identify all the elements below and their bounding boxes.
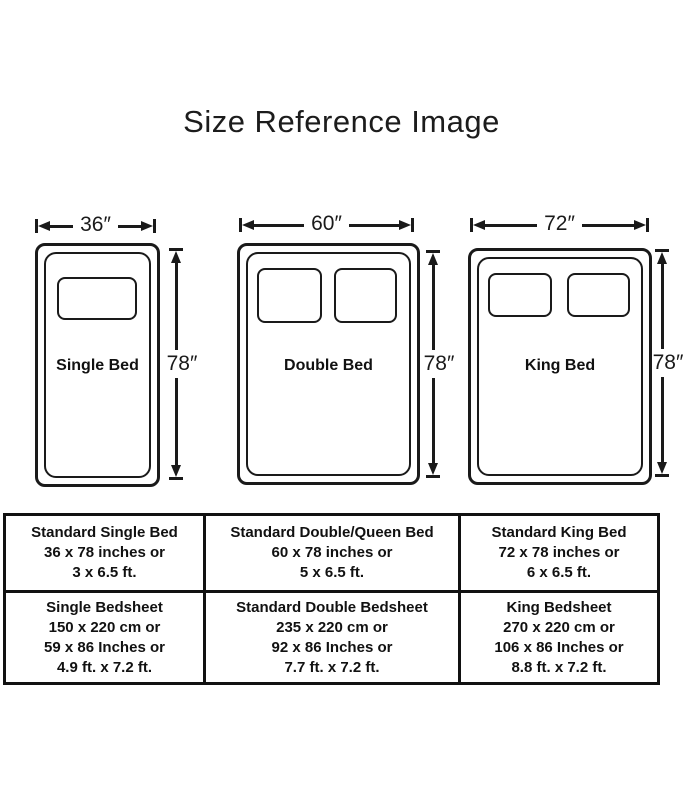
- arrow-line: [432, 378, 435, 463]
- arrow-line: [432, 265, 435, 350]
- size-reference-table: Standard Single Bed 36 x 78 inches or 3 …: [3, 513, 660, 685]
- table-line: 270 x 220 cm or: [503, 618, 615, 638]
- table-line: 106 x 86 Inches or: [494, 638, 623, 658]
- arrowhead-up-icon: [657, 252, 667, 264]
- single-bed-width-arrow: 36″: [35, 216, 156, 236]
- height-dimension-label: 78″: [424, 350, 455, 378]
- table-cell-standard-double-queen-bed: Standard Double/Queen Bed 60 x 78 inches…: [206, 516, 461, 593]
- arrow-line: [254, 224, 304, 227]
- arrow-line: [661, 377, 664, 462]
- table-cell-king-bedsheet: King Bedsheet 270 x 220 cm or 106 x 86 I…: [461, 593, 657, 682]
- table-cell-standard-single-bed: Standard Single Bed 36 x 78 inches or 3 …: [6, 516, 206, 593]
- table-cell-standard-king-bed: Standard King Bed 72 x 78 inches or 6 x …: [461, 516, 657, 593]
- width-dimension-label: 36″: [73, 213, 118, 237]
- arrow-endbar: [426, 475, 440, 478]
- table-line: 5 x 6.5 ft.: [300, 563, 364, 583]
- arrowhead-left-icon: [473, 220, 485, 230]
- arrow-line: [175, 378, 178, 465]
- height-dimension-label: 78″: [167, 350, 198, 378]
- arrowhead-down-icon: [657, 462, 667, 474]
- arrow-endbar: [655, 474, 669, 477]
- table-cell-standard-double-bedsheet: Standard Double Bedsheet 235 x 220 cm or…: [206, 593, 461, 682]
- size-reference-image: Size Reference Image 36″ Single Bed 78″ …: [0, 0, 683, 800]
- table-line: 8.8 ft. x 7.2 ft.: [511, 658, 606, 678]
- table-line: 59 x 86 Inches or: [44, 638, 165, 658]
- width-dimension-label: 72″: [537, 212, 582, 236]
- table-line: 4.9 ft. x 7.2 ft.: [57, 658, 152, 678]
- arrow-line: [349, 224, 399, 227]
- arrowhead-right-icon: [141, 221, 153, 231]
- arrow-endbar: [646, 218, 649, 232]
- bed-outline: King Bed: [468, 248, 652, 485]
- table-line: 72 x 78 inches or: [499, 543, 620, 563]
- arrowhead-down-icon: [428, 463, 438, 475]
- table-line: 3 x 6.5 ft.: [72, 563, 136, 583]
- arrowhead-right-icon: [634, 220, 646, 230]
- arrowhead-down-icon: [171, 465, 181, 477]
- width-dimension-label: 60″: [304, 212, 349, 236]
- page-title: Size Reference Image: [0, 104, 683, 140]
- table-line: Single Bedsheet: [46, 598, 163, 618]
- arrow-endbar: [169, 477, 183, 480]
- arrow-line: [50, 225, 73, 228]
- arrow-line: [485, 224, 537, 227]
- table-line: 7.7 ft. x 7.2 ft.: [284, 658, 379, 678]
- bed-name-label: Single Bed: [38, 358, 157, 374]
- double-bed-width-arrow: 60″: [239, 215, 414, 235]
- pillow-right: [567, 273, 630, 317]
- arrowhead-up-icon: [428, 253, 438, 265]
- pillow-left: [488, 273, 552, 317]
- bed-outline: Single Bed: [35, 243, 160, 487]
- table-line: 235 x 220 cm or: [276, 618, 388, 638]
- bed-name-label: King Bed: [471, 358, 649, 374]
- table-cell-single-bedsheet: Single Bedsheet 150 x 220 cm or 59 x 86 …: [6, 593, 206, 682]
- king-bed-width-arrow: 72″: [470, 215, 649, 235]
- arrow-line: [661, 264, 664, 349]
- arrow-line: [175, 263, 178, 350]
- arrowhead-left-icon: [38, 221, 50, 231]
- single-bed-height-arrow: 78″: [158, 248, 194, 480]
- table-line: Standard Double Bedsheet: [236, 598, 428, 618]
- table-line: Standard Double/Queen Bed: [230, 523, 433, 543]
- table-line: 36 x 78 inches or: [44, 543, 165, 563]
- arrowhead-up-icon: [171, 251, 181, 263]
- table-line: Standard King Bed: [491, 523, 626, 543]
- arrowhead-left-icon: [242, 220, 254, 230]
- arrow-line: [582, 224, 634, 227]
- pillow-left: [257, 268, 322, 323]
- table-line: 6 x 6.5 ft.: [527, 563, 591, 583]
- table-line: King Bedsheet: [506, 598, 611, 618]
- arrow-endbar: [411, 218, 414, 232]
- table-line: Standard Single Bed: [31, 523, 178, 543]
- arrow-endbar: [153, 219, 156, 233]
- table-line: 150 x 220 cm or: [49, 618, 161, 638]
- pillow-right: [334, 268, 397, 323]
- table-line: 60 x 78 inches or: [272, 543, 393, 563]
- arrowhead-right-icon: [399, 220, 411, 230]
- pillow: [57, 277, 137, 320]
- bed-outline: Double Bed: [237, 243, 420, 485]
- height-dimension-label: 78″: [653, 349, 683, 377]
- double-bed-height-arrow: 78″: [415, 250, 451, 478]
- king-bed-height-arrow: 78″: [644, 249, 680, 477]
- arrow-line: [118, 225, 141, 228]
- bed-name-label: Double Bed: [240, 358, 417, 374]
- table-line: 92 x 86 Inches or: [272, 638, 393, 658]
